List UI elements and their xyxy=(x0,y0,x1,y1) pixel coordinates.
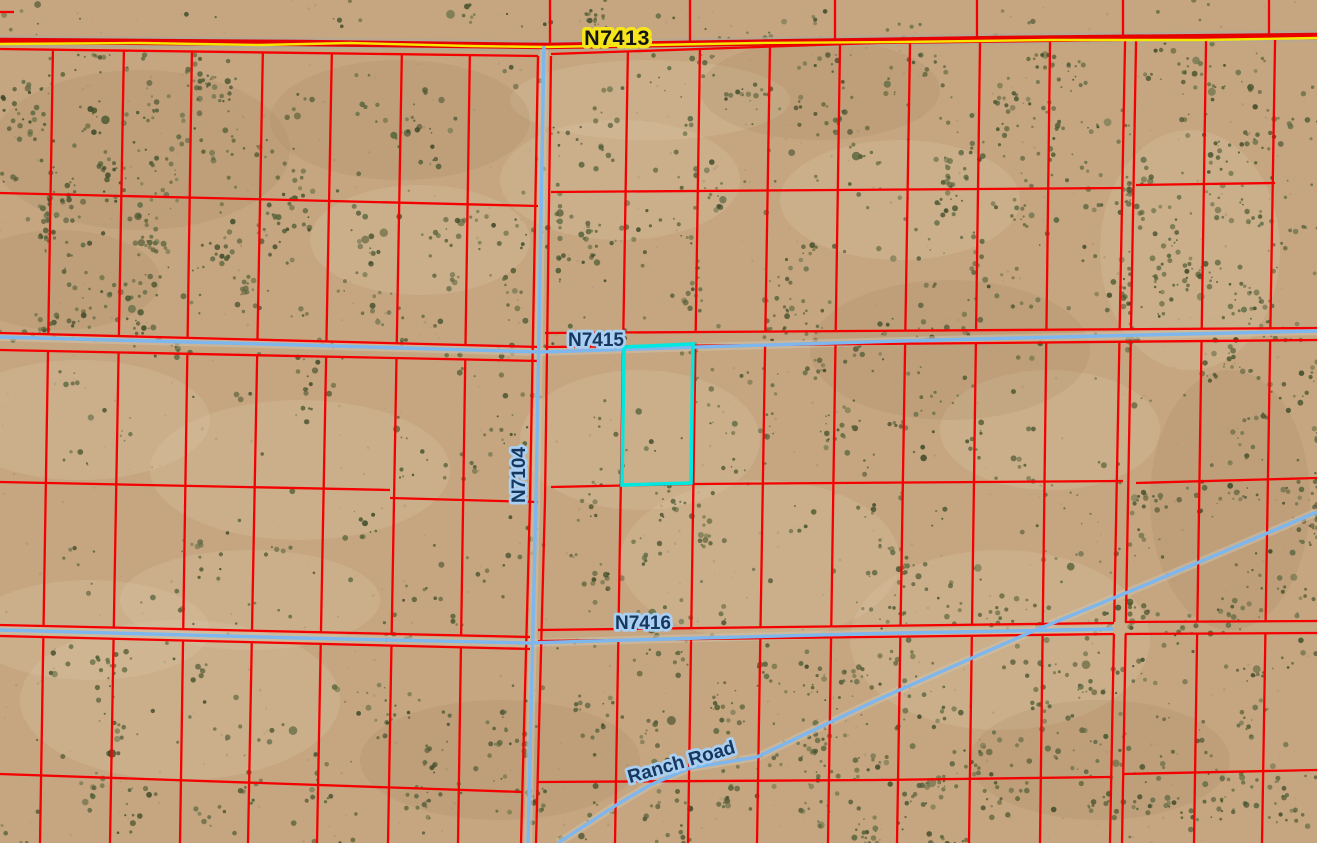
road-label-n7104: N7104 xyxy=(509,447,530,503)
map-viewport[interactable]: N7413 N7415 N7104 N7416 Ranch Road xyxy=(0,0,1317,843)
road-label-n7415: N7415 xyxy=(568,330,624,351)
road-label-n7416: N7416 xyxy=(615,613,671,634)
map-canvas[interactable]: N7413 N7415 N7104 N7416 Ranch Road xyxy=(0,0,1317,843)
road-label-n7413: N7413 xyxy=(584,26,650,50)
